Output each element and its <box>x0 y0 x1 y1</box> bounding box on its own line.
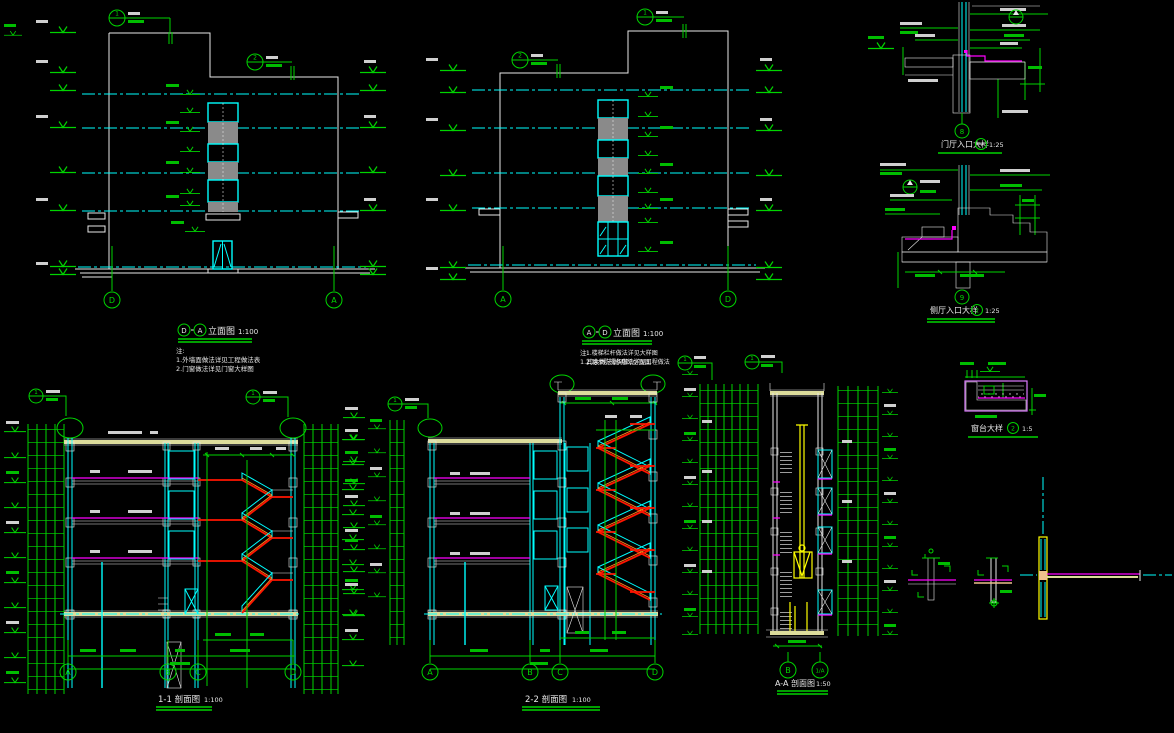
title-text: 2-2 剖面图 <box>525 694 567 705</box>
detail-mullion-section <box>1020 477 1172 619</box>
note-line: 1.楼梯栏杆做法详见大样图 <box>586 349 658 357</box>
detail-mullion-plan-1 <box>908 549 956 600</box>
section-2-2: A B C D 1 1.楼梯栏杆做法详见大样图 2.踏步防滑条做法详见工程做法 … <box>343 349 670 710</box>
note-line: 2.门窗做法详见门窗大样图 <box>176 364 254 373</box>
grid-bubble: 9 <box>960 294 964 302</box>
callout-number: 1 <box>643 10 647 17</box>
detail-callout: 2 <box>247 54 294 80</box>
title-text: 1-1 剖面图 <box>158 694 200 705</box>
note-line: 注: <box>176 346 185 355</box>
view-title: D A 立面图 1:100 注: 1.外墙面做法详见工程做法表 2.门窗做法详见… <box>176 324 261 373</box>
detail-mullion-plan-2 <box>974 558 1012 608</box>
grid-bubble: D <box>725 295 731 304</box>
view-title: 门厅入口大样 1:25 <box>938 139 1004 154</box>
grid-bubble: 8 <box>960 128 964 136</box>
callout-number: 1 <box>683 357 687 363</box>
section-a-a: 1 1 <box>678 355 898 694</box>
title-scale: 1:50 <box>816 680 831 688</box>
title-scale: 1:100 <box>572 696 591 704</box>
callout-number: 1 <box>750 356 754 362</box>
detail-entrance-1: 8 门厅入口大样 1:25 <box>868 2 1048 153</box>
grid-bubble: D <box>652 668 658 677</box>
grid-bubble: 1/A <box>815 669 824 675</box>
level-markers <box>4 20 386 275</box>
callout-number: 1 <box>115 11 119 18</box>
view-title: 侧厅入口大样 2 1:25 <box>927 305 1000 323</box>
title-bubble: D <box>602 329 607 337</box>
callout-number: 1 <box>393 398 397 404</box>
note-line: 2.踏步防滑条做法详见工程做法 <box>586 358 670 366</box>
detail-callout: 1 <box>388 397 428 418</box>
title-text: 立面图 <box>613 327 640 339</box>
view-title: A-A 剖面图 1:50 <box>775 678 831 694</box>
title-bubble: A <box>587 329 592 337</box>
lower-window <box>598 222 628 256</box>
detail-window-sill: 窗台大样 2 1:5 <box>960 362 1046 437</box>
title-scale: 1:100 <box>204 696 223 704</box>
elevation-d-a: D A 1 <box>4 10 386 373</box>
title-text: 窗台大样 <box>971 423 1003 433</box>
grid-bubble: B <box>165 668 171 677</box>
title-scale: 1:100 <box>643 330 663 338</box>
title-scale: 1:5 <box>1022 425 1032 433</box>
grid-bubble: B <box>527 668 533 677</box>
detail-callout: 1 <box>678 356 712 380</box>
callout-number: 2 <box>518 53 522 60</box>
title-text: 立面图 <box>208 325 235 337</box>
title-text: 侧厅入口大样 <box>930 305 978 315</box>
grid-bubble: C <box>557 668 563 677</box>
grid-bubble: A <box>65 668 71 677</box>
entrance-door <box>213 241 232 269</box>
view-title: 2-2 剖面图 1:100 <box>522 694 600 710</box>
detail-callout: 2 <box>512 52 560 78</box>
beam-blocks <box>771 448 823 615</box>
section-1-1: A B C D 1 1 1-1 剖面图 1:100 <box>4 389 364 710</box>
lower-core <box>158 589 198 688</box>
detail-callout: 1 <box>745 355 782 373</box>
shaft-doors <box>818 450 832 615</box>
note-line: 1.外墙面做法详见工程做法表 <box>176 355 261 364</box>
stair-flights <box>198 473 293 613</box>
view-title: 1-1 剖面图 1:100 <box>156 694 223 710</box>
grid-bubble: A <box>427 668 433 677</box>
detail-callout: 1 <box>29 389 66 416</box>
title-scale: 1:100 <box>238 328 258 336</box>
beam-blocks <box>428 393 657 619</box>
detail-callout: 1 <box>246 390 288 417</box>
callout-number: 2 <box>253 55 257 62</box>
grid-bubble: D <box>290 668 296 677</box>
cad-canvas[interactable]: D A 1 <box>0 0 1174 733</box>
title-scale: 1:25 <box>985 307 1000 315</box>
elevation-a-d: A D 1 <box>426 9 782 366</box>
elevator <box>790 425 812 632</box>
grid-bubble: B <box>785 666 791 675</box>
detail-callout: 1 <box>109 10 172 44</box>
title-text: A-A 剖面图 <box>775 678 815 688</box>
level-markers <box>343 407 386 616</box>
grid-bubble: A <box>331 296 337 305</box>
cad-drawing: D A 1 <box>0 0 1174 733</box>
callout-number: 1 <box>34 390 38 396</box>
title-bubble: A <box>198 327 203 335</box>
grid-bubble: C <box>195 668 201 677</box>
detail-entrance-2: 9 侧厅入口大样 2 1:25 <box>880 163 1050 322</box>
title-bubble: D <box>181 327 186 335</box>
title-scale: 1:25 <box>989 141 1004 149</box>
view-title: 窗台大样 2 1:5 <box>968 423 1038 438</box>
grid-bubble: A <box>500 295 506 304</box>
detail-symbol: 2 <box>1011 426 1015 433</box>
callout-number: 1 <box>251 391 255 397</box>
detail-symbol: 2 <box>975 308 979 315</box>
detail-callout: 1 <box>637 9 686 38</box>
grid-bubble: D <box>109 296 115 305</box>
